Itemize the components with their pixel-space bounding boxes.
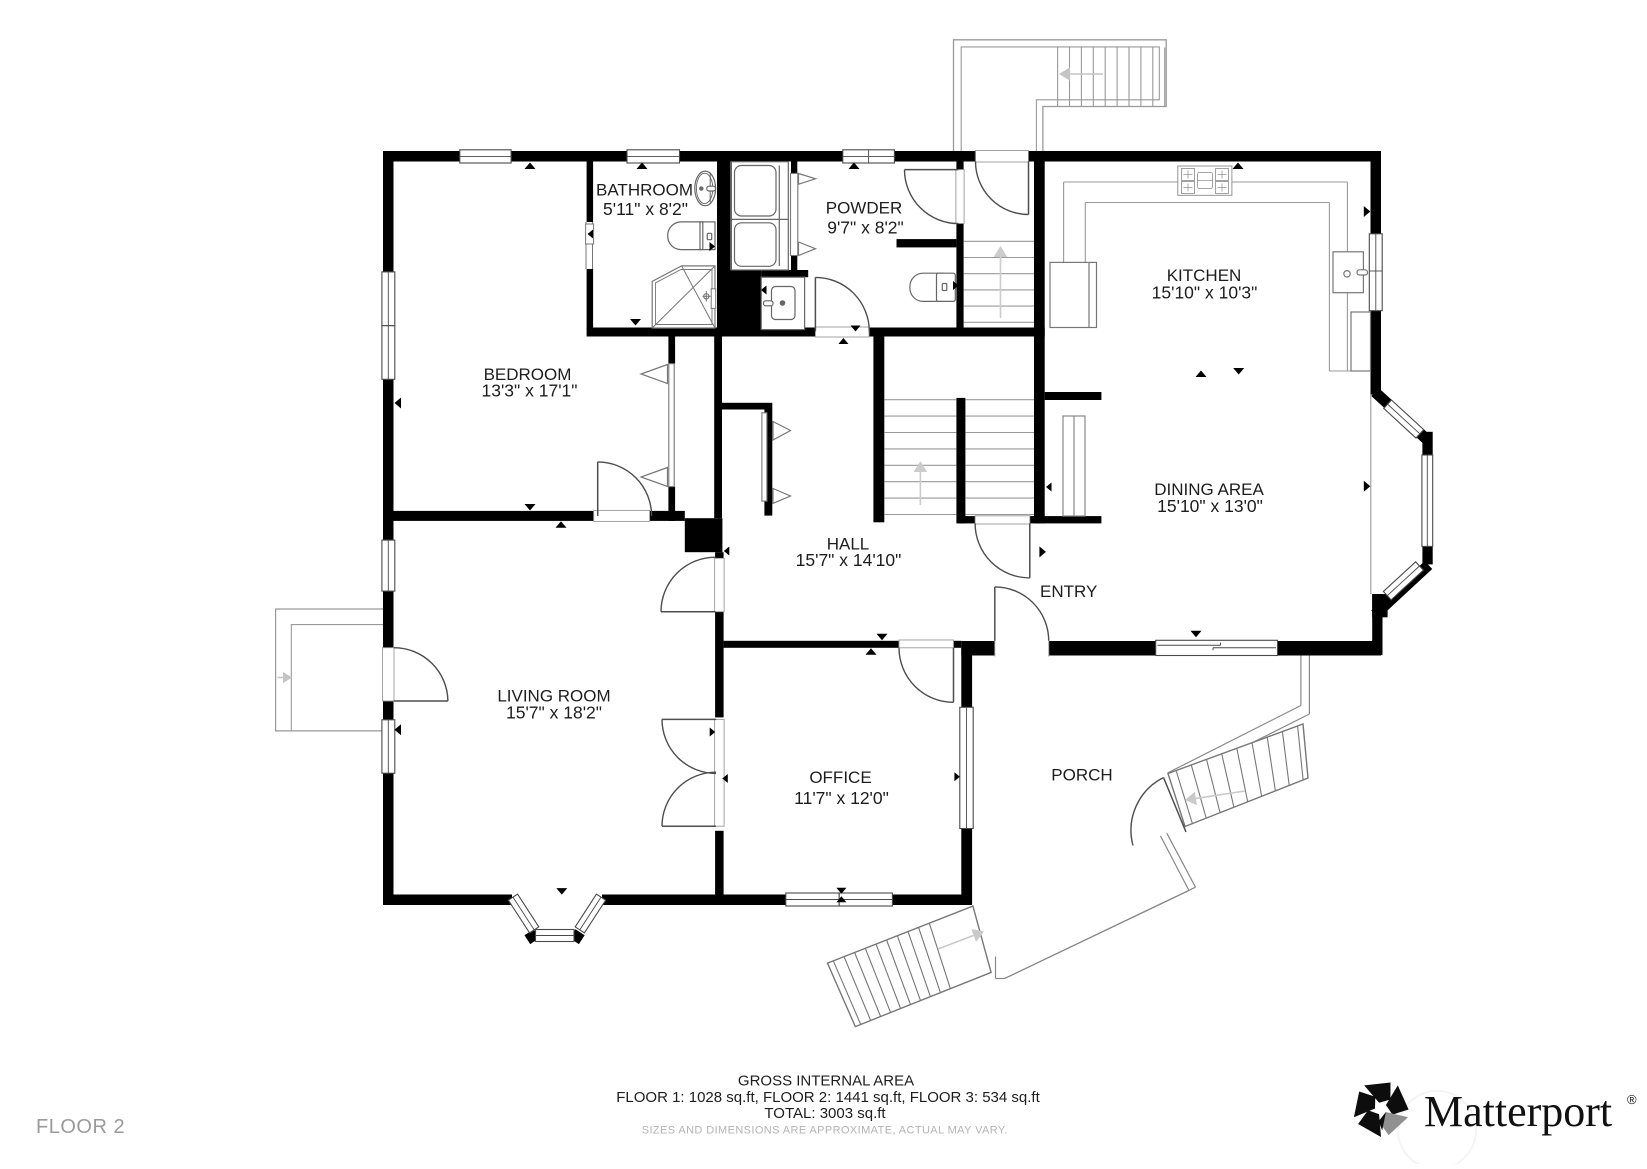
svg-text:BATHROOM: BATHROOM	[596, 181, 693, 200]
svg-text:GROSS INTERNAL AREA: GROSS INTERNAL AREA	[738, 1072, 914, 1089]
svg-text:OFFICE: OFFICE	[809, 768, 871, 787]
svg-text:ENTRY: ENTRY	[1040, 582, 1097, 601]
svg-text:9'7" x 8'2": 9'7" x 8'2"	[827, 218, 904, 238]
svg-text:Matterport: Matterport	[1424, 1087, 1612, 1136]
svg-text:FLOOR 1: 1028 sq.ft, FLOOR 2:: FLOOR 1: 1028 sq.ft, FLOOR 2: 1441 sq.ft…	[616, 1089, 1040, 1106]
svg-text:11'7" x 12'0": 11'7" x 12'0"	[794, 788, 889, 808]
svg-text:FLOOR 2: FLOOR 2	[36, 1116, 125, 1138]
svg-text:13'3" x 17'1": 13'3" x 17'1"	[482, 380, 578, 400]
svg-text:SIZES AND DIMENSIONS ARE APPRO: SIZES AND DIMENSIONS ARE APPROXIMATE, AC…	[642, 1125, 1008, 1137]
svg-text:TOTAL: 3003 sq.ft: TOTAL: 3003 sq.ft	[764, 1105, 886, 1122]
svg-text:POWDER: POWDER	[826, 199, 903, 218]
svg-text:5'11" x 8'2": 5'11" x 8'2"	[603, 199, 688, 219]
svg-text:®: ®	[1627, 1092, 1637, 1107]
svg-text:PORCH: PORCH	[1051, 766, 1112, 785]
svg-text:15'10" x 13'0": 15'10" x 13'0"	[1157, 496, 1263, 516]
svg-text:15'7" x 14'10": 15'7" x 14'10"	[796, 550, 902, 570]
svg-text:15'10" x 10'3": 15'10" x 10'3"	[1152, 283, 1258, 303]
svg-text:15'7" x 18'2": 15'7" x 18'2"	[506, 703, 602, 723]
